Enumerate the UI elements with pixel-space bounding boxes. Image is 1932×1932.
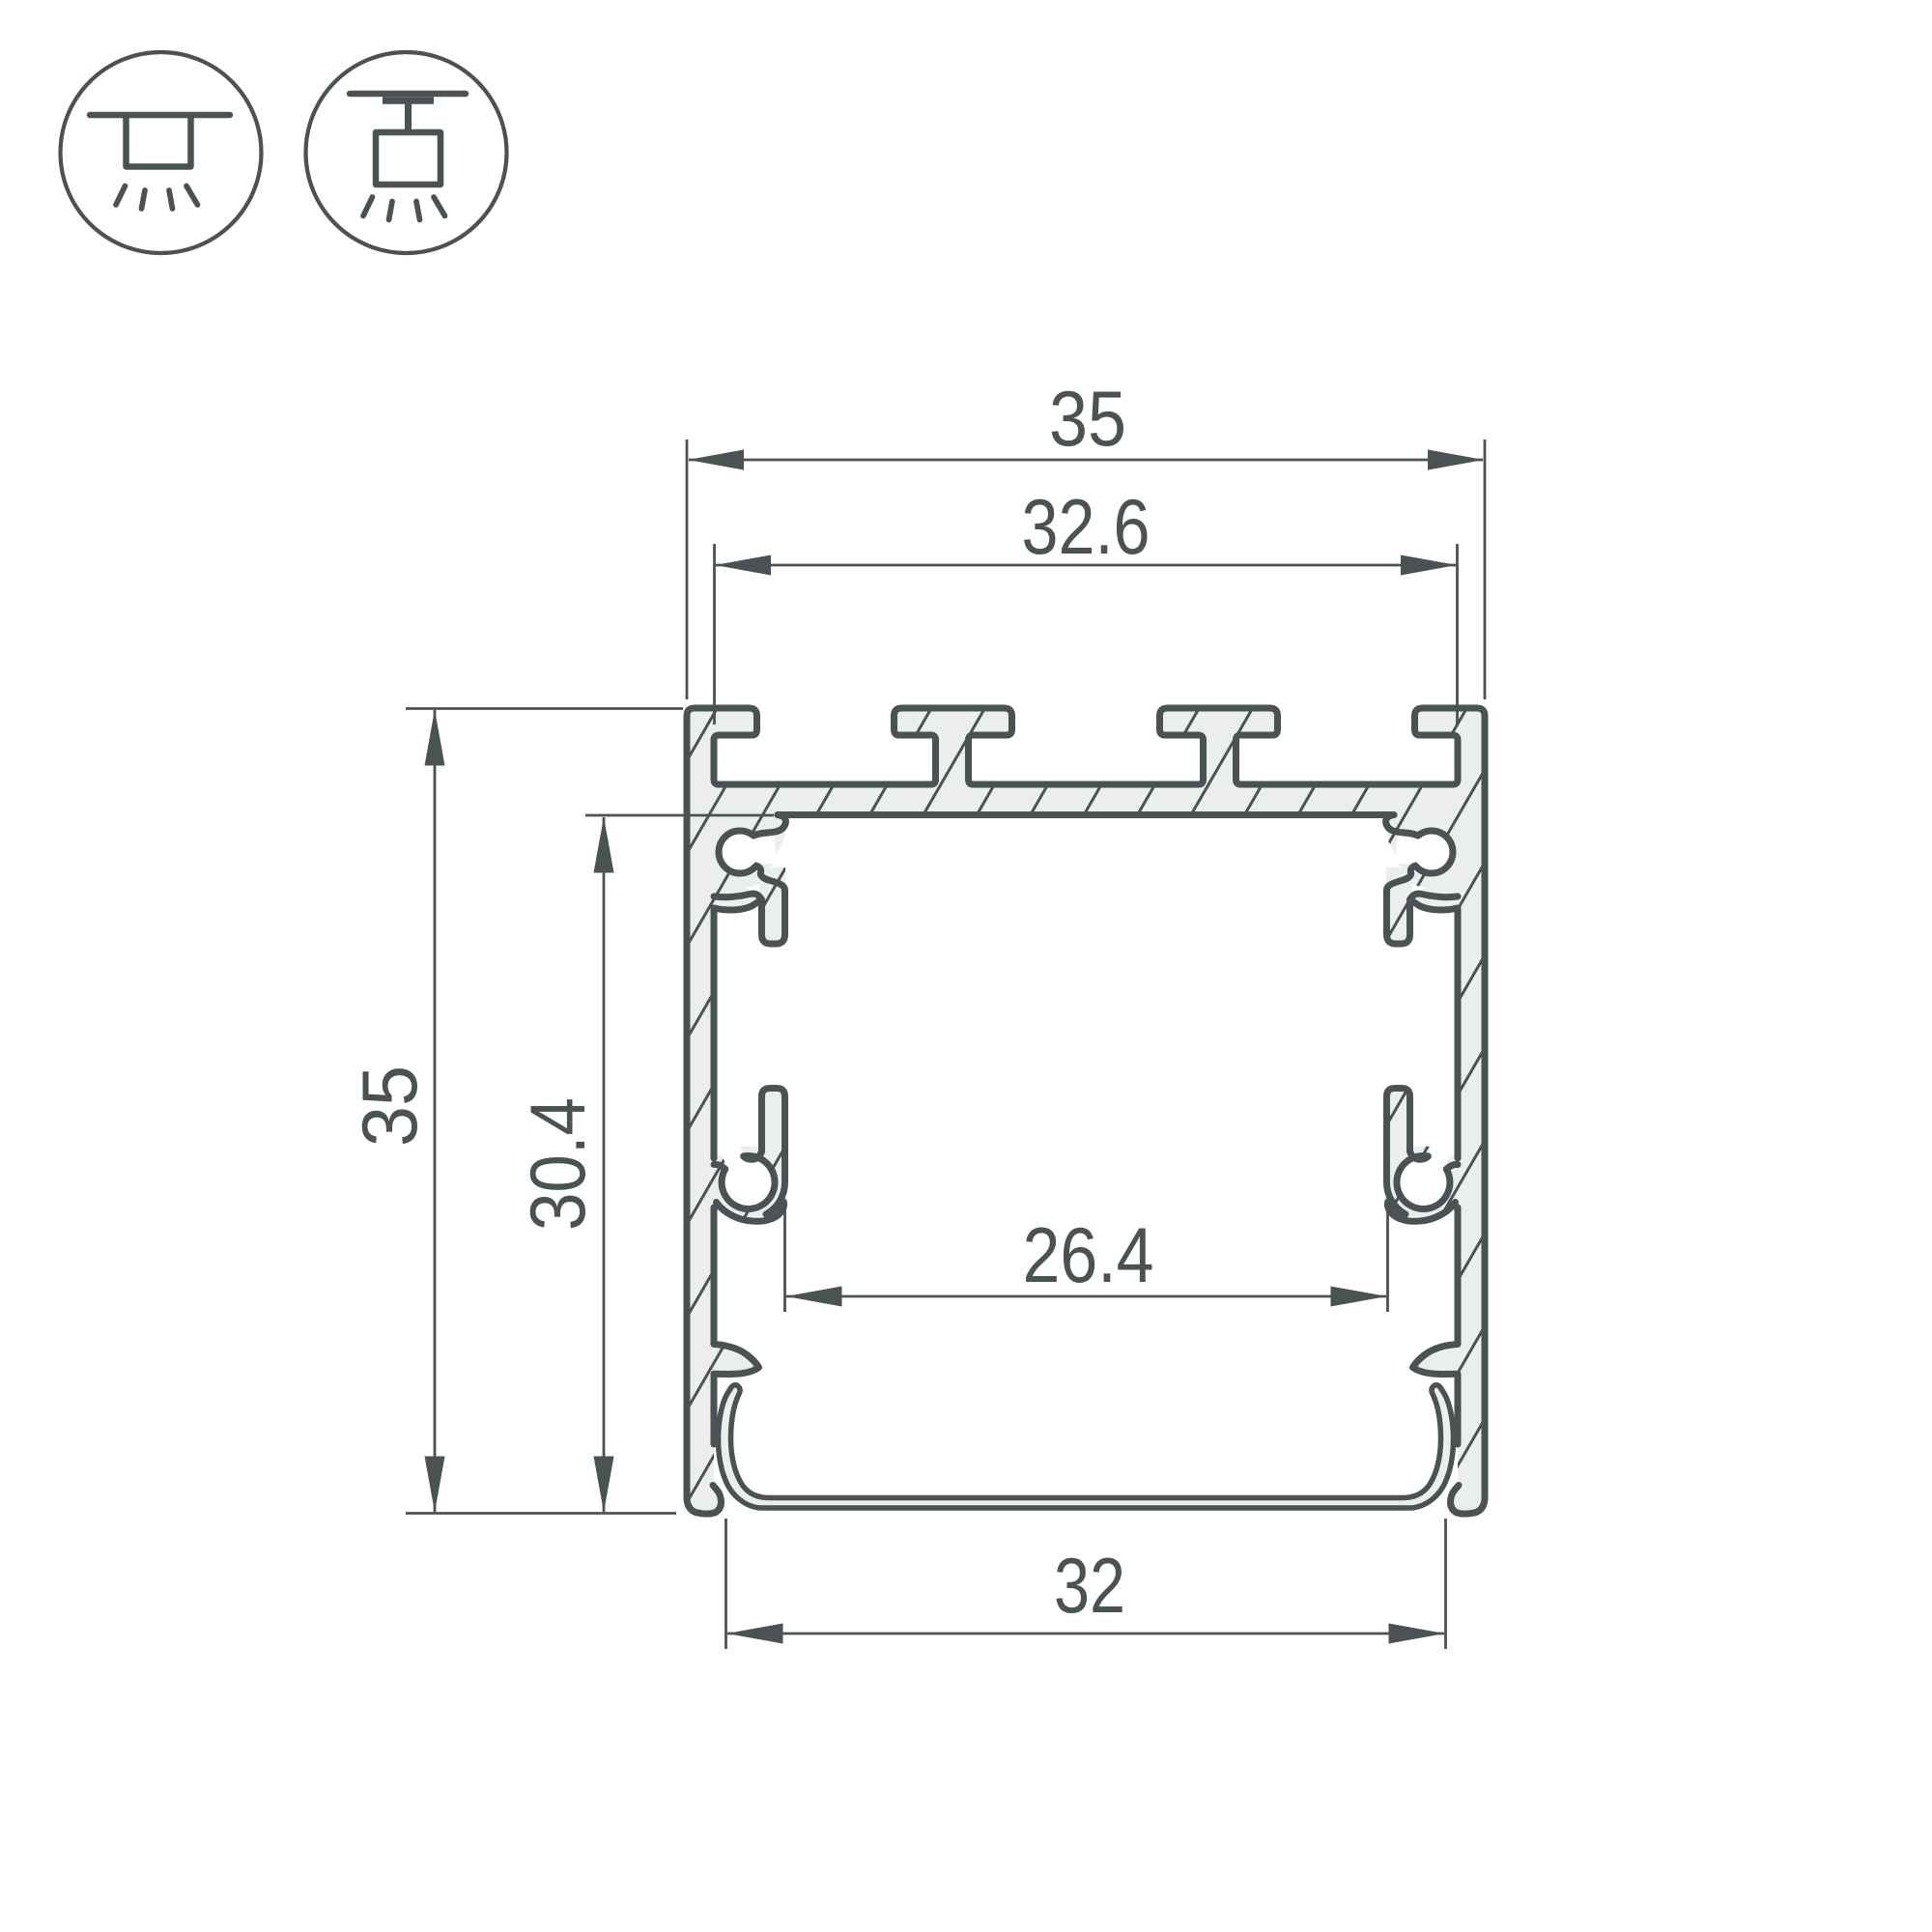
svg-text:35: 35 xyxy=(347,1065,434,1147)
svg-text:35: 35 xyxy=(1049,376,1126,463)
svg-text:32.6: 32.6 xyxy=(1022,484,1151,571)
svg-text:32: 32 xyxy=(1054,1543,1125,1630)
svg-text:30.4: 30.4 xyxy=(515,1097,602,1231)
svg-text:26.4: 26.4 xyxy=(1023,1212,1154,1299)
